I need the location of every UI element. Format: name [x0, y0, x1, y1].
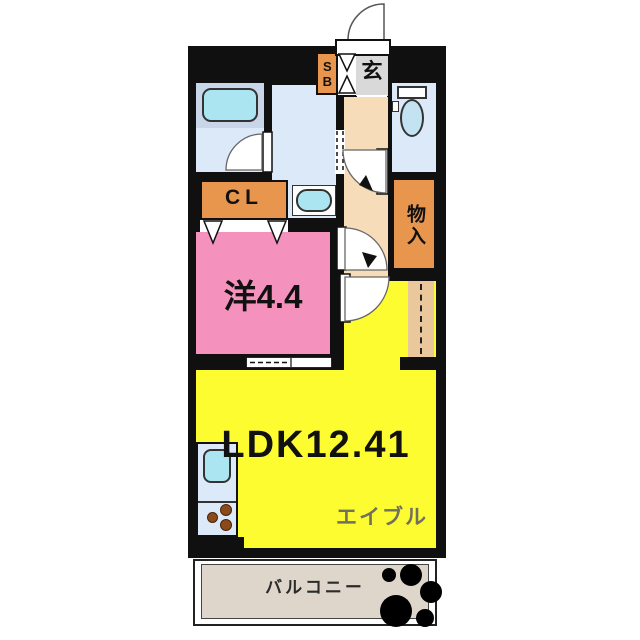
shoe-box-folding-door: [338, 52, 356, 95]
closet-label: CL: [200, 187, 288, 209]
entrance-door-swing-arc: [348, 4, 384, 40]
paw-toe: [382, 568, 396, 582]
stove-burner: [220, 519, 232, 531]
stove-burner: [207, 512, 218, 523]
floor-plan-canvas: SB 玄 CL 洋4.4 物入 LDK12.41 エイブル バルコニー: [0, 0, 640, 640]
wall-under-kitchen: [188, 537, 244, 558]
shoe-box-label: SB: [316, 55, 338, 93]
toilet-bowl: [400, 99, 424, 137]
entrance-label: 玄: [356, 61, 388, 83]
agency-watermark: エイブル: [330, 507, 434, 529]
wall-under-west-room: [188, 354, 336, 370]
western-room-label: 洋4.4: [196, 280, 330, 315]
paw-pad: [380, 595, 412, 627]
hallway: [344, 97, 388, 277]
stove-burner: [220, 504, 232, 516]
toilet-flush-handle: [392, 101, 399, 112]
paw-toe: [420, 581, 442, 603]
ldk-label: LDK12.41: [196, 426, 436, 466]
paw-toe: [400, 564, 422, 586]
wall-under-fridge-space: [400, 357, 436, 370]
wall-under-storage: [388, 268, 436, 281]
toilet-tank: [397, 86, 427, 99]
refrigerator-space-dashed-line: [420, 284, 422, 354]
washroom-sink: [296, 189, 332, 212]
bathtub: [202, 88, 258, 122]
kitchen-counter-divider: [198, 501, 236, 503]
storage-label: 物入: [392, 190, 436, 262]
paw-toe: [416, 609, 434, 627]
refrigerator-space: [408, 281, 434, 357]
wall-west-room-right: [330, 232, 344, 370]
closet-door-strip: [200, 220, 288, 232]
